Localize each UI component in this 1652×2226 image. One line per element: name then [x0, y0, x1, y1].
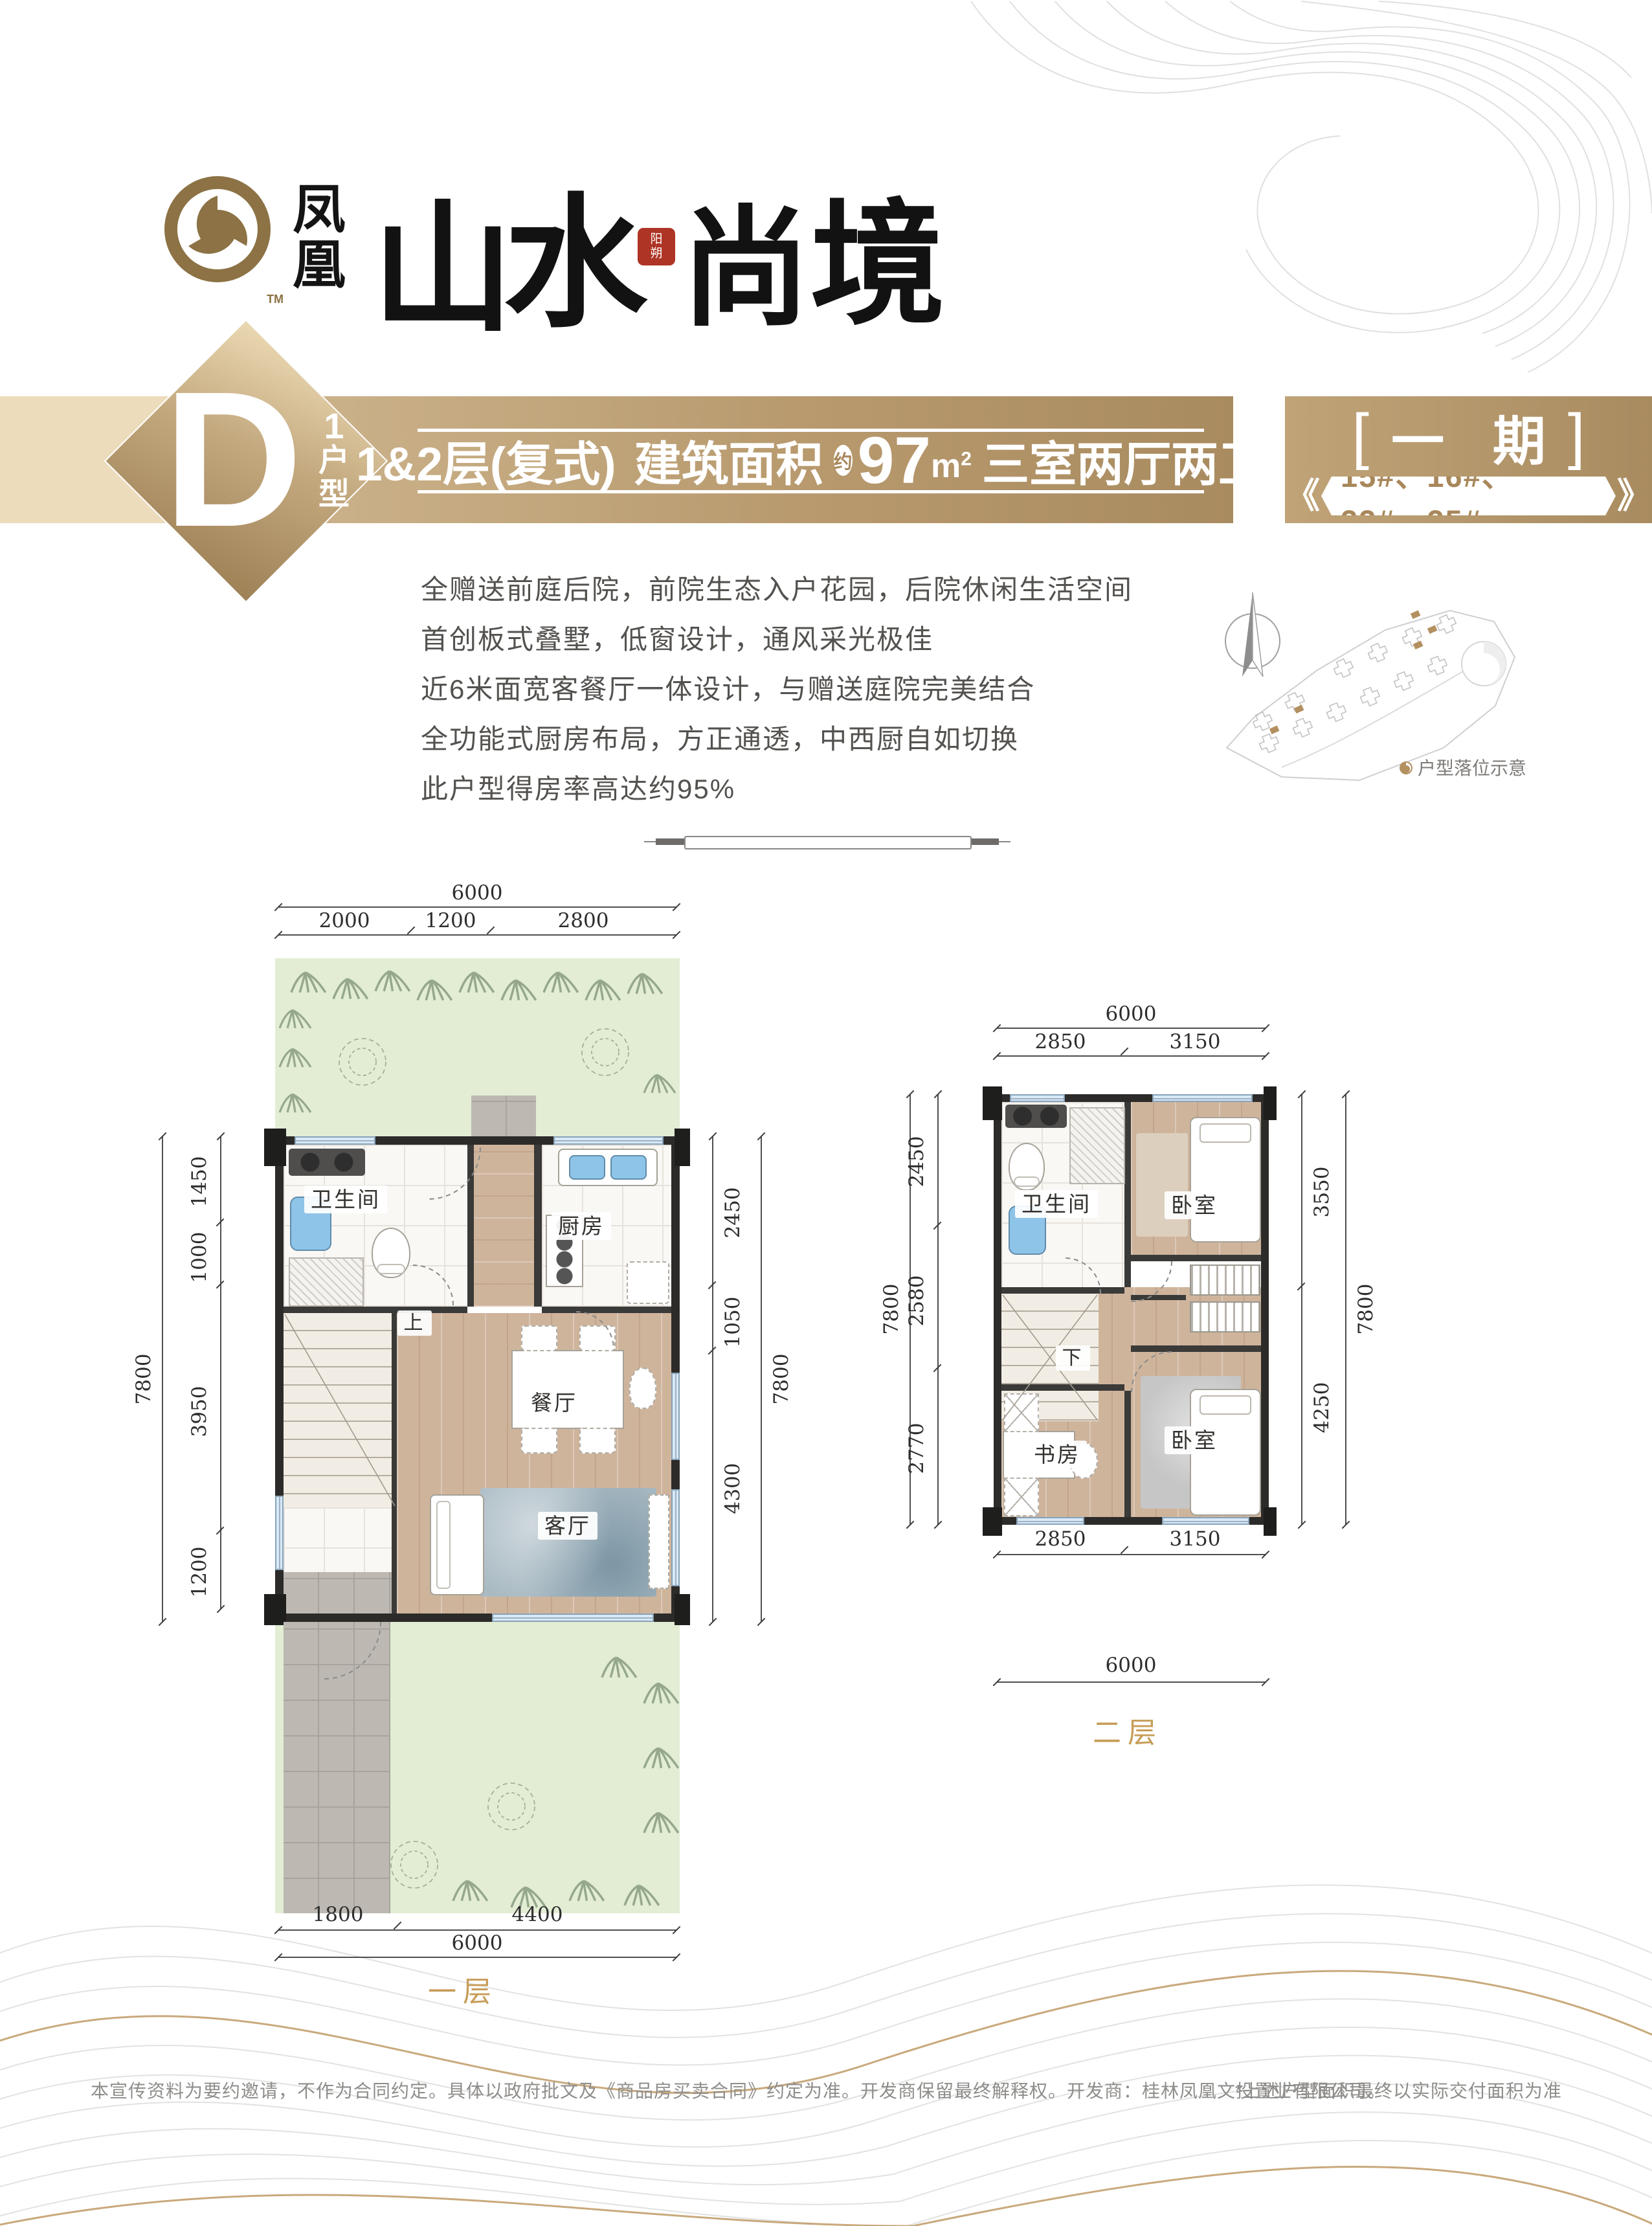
unit-suffix: 户型 [318, 444, 350, 512]
room-label-bedroom: 卧室 [1155, 1423, 1233, 1454]
dim-label: 7800 [131, 1324, 157, 1434]
dim-label: 1050 [720, 1267, 746, 1377]
dim-line [278, 906, 676, 908]
feature-list: 全赠送前庭后院，前院生态入户花园，后院休闲生活空间 首创板式叠墅，低窗设计，通风… [421, 565, 1133, 814]
floor1-hall-floor [474, 1145, 534, 1307]
bed [1190, 1117, 1261, 1242]
dim-line [997, 1028, 1266, 1029]
area-value: 97 [858, 427, 931, 493]
dim-label: 6000 [1092, 1654, 1170, 1676]
wall-pier [675, 1594, 690, 1625]
dining-chair [629, 1367, 656, 1409]
dim-line [937, 1094, 939, 1525]
dim-line [278, 1957, 676, 1958]
dim-label: 4400 [498, 1904, 576, 1926]
dim-label: 7800 [1353, 1254, 1379, 1364]
wall-pier [983, 1507, 1002, 1536]
wall-pier [264, 1594, 286, 1625]
buildings-band: 15#、16#、22#、25# [1321, 477, 1616, 515]
window [671, 1373, 680, 1460]
floor1-caption: 一层 [398, 1968, 528, 2010]
window [1010, 1094, 1065, 1102]
wall-pier [983, 1086, 1002, 1120]
dim-tick [394, 1922, 402, 1930]
dim-line [712, 1136, 713, 1622]
title-char-shang: 尚 [681, 163, 810, 351]
title-seal: 阳朔 [638, 228, 675, 265]
phase-block: [ 一 期 ] [1285, 399, 1652, 474]
area-unit: m2 [931, 447, 972, 486]
wall-pier [1264, 1507, 1277, 1536]
room-label-living: 客厅 [529, 1509, 607, 1540]
unit-number: 1 [324, 408, 344, 444]
divider-capsule [684, 836, 972, 849]
room-label-bathroom: 卫生间 [294, 1182, 397, 1213]
dim-label: 2000 [306, 910, 383, 932]
room-label-bathroom: 卫生间 [1005, 1187, 1108, 1218]
interior-wall [1001, 1287, 1124, 1294]
logo-phoenix-icon [162, 174, 273, 285]
dim-label: 6000 [1092, 1003, 1170, 1025]
interior-wall [467, 1145, 474, 1307]
site-plan: 户型落位示意 [1191, 554, 1528, 806]
phase-bracket-right: ] [1568, 405, 1585, 467]
footer-note: *上述户型面积最终以实际交付面积为准 [1235, 2077, 1562, 2103]
room-label-dining: 餐厅 [515, 1386, 593, 1417]
interior-wall [1131, 1255, 1261, 1261]
po​ster-page: TM 凤凰 山 水 尚 境 阳朔 D 1 户型 1&2层(复式) 建筑面积 约 … [0, 0, 1652, 2226]
kitchen-sink [558, 1149, 658, 1186]
wall-pier [264, 1129, 286, 1166]
dim-label: 2450 [720, 1158, 746, 1268]
compass-icon [1225, 592, 1280, 677]
unit-type-label: 1 户型 [315, 408, 353, 512]
dim-label: 2580 [904, 1246, 930, 1356]
dim-label: 3150 [1156, 1528, 1234, 1550]
title-char-shui: 水 [504, 146, 647, 355]
dim-label: 4300 [720, 1433, 746, 1544]
kitchen-cabinet [627, 1261, 669, 1304]
dim-line [997, 1681, 1266, 1683]
interior-wall [392, 1313, 397, 1613]
window [492, 1613, 654, 1622]
planter-box [1004, 1478, 1039, 1516]
interior-wall [1131, 1295, 1186, 1300]
interior-wall [1124, 1102, 1131, 1287]
stairs-up-label: 上 [388, 1307, 440, 1335]
room-label-bedroom: 卧室 [1155, 1188, 1233, 1219]
interior-wall [1131, 1345, 1261, 1352]
back-porch [471, 1096, 536, 1136]
brand-name-vertical: 凤凰 [293, 183, 352, 293]
bathroom-vanity [1005, 1105, 1067, 1128]
interior-wall [542, 1307, 671, 1313]
floor1-entry-floor [284, 1572, 392, 1613]
guillemet-right-icon: 》 [1617, 478, 1652, 513]
dim-line [162, 1136, 163, 1622]
toilet [372, 1228, 410, 1278]
divider-end-right [969, 838, 999, 845]
tv-cabinet [649, 1494, 669, 1589]
dim-label: 6000 [438, 1932, 516, 1954]
phase-label: 一 期 [1391, 398, 1563, 475]
banner-area-label: 建筑面积 [634, 426, 823, 495]
dim-label: 3150 [1156, 1031, 1234, 1053]
title-char-shan: 山 [372, 154, 513, 359]
banner-floors: 1&2层(复式) [356, 426, 616, 495]
dining-chair [579, 1428, 616, 1454]
banner-text: 1&2层(复式) 建筑面积 约 97 m2 三室两厅两卫 [418, 431, 1204, 489]
window [275, 1496, 284, 1570]
shower-area [1069, 1107, 1125, 1184]
dining-chair [579, 1325, 616, 1351]
approx-badge: 约 [834, 445, 853, 476]
dim-line [997, 1554, 1266, 1555]
feature-line: 全赠送前庭后院，前院生态入户花园，后院休闲生活空间 [421, 565, 1133, 614]
trademark-mark: TM [267, 293, 284, 306]
interior-wall [534, 1145, 542, 1307]
feature-line: 全功能式厨房布局，方正通透，中西厨自如切换 [421, 714, 1133, 764]
living-room-rug [480, 1488, 656, 1597]
phase-bracket-left: [ [1352, 405, 1369, 467]
window [671, 1489, 680, 1586]
seal-text: 阳朔 [649, 232, 664, 261]
dim-line [278, 1929, 676, 1931]
dim-label: 1200 [186, 1517, 212, 1627]
entry-path [284, 1622, 390, 1913]
site-plan-outline [1227, 611, 1515, 780]
window [1162, 1517, 1249, 1525]
window [553, 1136, 664, 1145]
stairs-down-label: 下 [1047, 1342, 1099, 1370]
dim-label: 6000 [438, 882, 516, 904]
dim-label: 2450 [904, 1107, 930, 1217]
dim-line [1301, 1094, 1302, 1525]
window [1152, 1094, 1253, 1102]
contour-lines-bottom [0, 1885, 1652, 2226]
dining-chair [521, 1428, 557, 1454]
site-plan-caption-text: 户型落位示意 [1418, 758, 1526, 778]
bathroom-vanity [289, 1149, 365, 1176]
dim-line [220, 1136, 221, 1609]
contour-lines-top-right [971, 1, 1652, 372]
feature-line: 首创板式叠墅，低窗设计，通风采光极佳 [421, 614, 1133, 664]
interior-wall [1124, 1391, 1131, 1517]
wall-pier [1264, 1086, 1277, 1120]
floor1-storage-floor [284, 1507, 392, 1572]
dim-line [761, 1136, 762, 1622]
unit-type-letter: D [152, 364, 314, 556]
sofa [430, 1494, 484, 1595]
dim-label: 3950 [186, 1356, 212, 1467]
dim-label: 2850 [1021, 1031, 1099, 1053]
interior-wall [1001, 1384, 1124, 1391]
dim-label: 7800 [878, 1254, 904, 1364]
planter-box [1004, 1393, 1039, 1432]
room-label-kitchen: 厨房 [542, 1209, 620, 1240]
floor2-caption: 二层 [1063, 1709, 1192, 1751]
dim-label: 4250 [1309, 1353, 1335, 1463]
dim-label: 3550 [1309, 1137, 1335, 1247]
banner-rooms: 三室两厅两卫 [982, 426, 1266, 495]
dim-label: 2770 [904, 1393, 930, 1503]
dining-chair [521, 1325, 557, 1351]
buildings-banner: 《 15#、16#、22#、25# 》 [1285, 475, 1652, 517]
wardrobe [1190, 1265, 1260, 1296]
bedroom-rug [1136, 1133, 1188, 1237]
footer-disclaimer: 本宣传资料为要约邀请，不作为合同约定。具体以政府批文及《商品房买卖合同》约定为准… [91, 2077, 1386, 2103]
dim-tick [1121, 1546, 1129, 1555]
dim-label: 1200 [412, 910, 489, 932]
dim-label: 2800 [544, 910, 622, 932]
dim-label: 1800 [299, 1904, 377, 1926]
guillemet-left-icon: 《 [1285, 478, 1320, 513]
window [295, 1136, 375, 1145]
feature-line: 近6米面宽客餐厅一体设计，与赠送庭院完美结合 [421, 664, 1133, 714]
wall-pier [675, 1129, 690, 1166]
shower-area [289, 1257, 364, 1307]
feature-line: 此户型得房率高达约95% [421, 764, 1133, 814]
dim-label: 7800 [768, 1324, 794, 1434]
dim-line [278, 934, 676, 936]
window [1016, 1517, 1084, 1525]
divider-end-left [656, 838, 686, 845]
toilet [1009, 1143, 1045, 1191]
dim-label: 1000 [186, 1202, 212, 1312]
title-char-jing: 境 [810, 155, 945, 350]
dim-line [1345, 1094, 1346, 1525]
wardrobe [1190, 1301, 1260, 1332]
room-label-study: 书房 [1018, 1437, 1096, 1468]
dim-tick [1121, 1048, 1129, 1056]
floor1-stairs [284, 1313, 392, 1507]
site-plan-caption: 户型落位示意 [1400, 758, 1526, 778]
dim-label: 2850 [1021, 1528, 1099, 1550]
dim-line [997, 1055, 1266, 1057]
